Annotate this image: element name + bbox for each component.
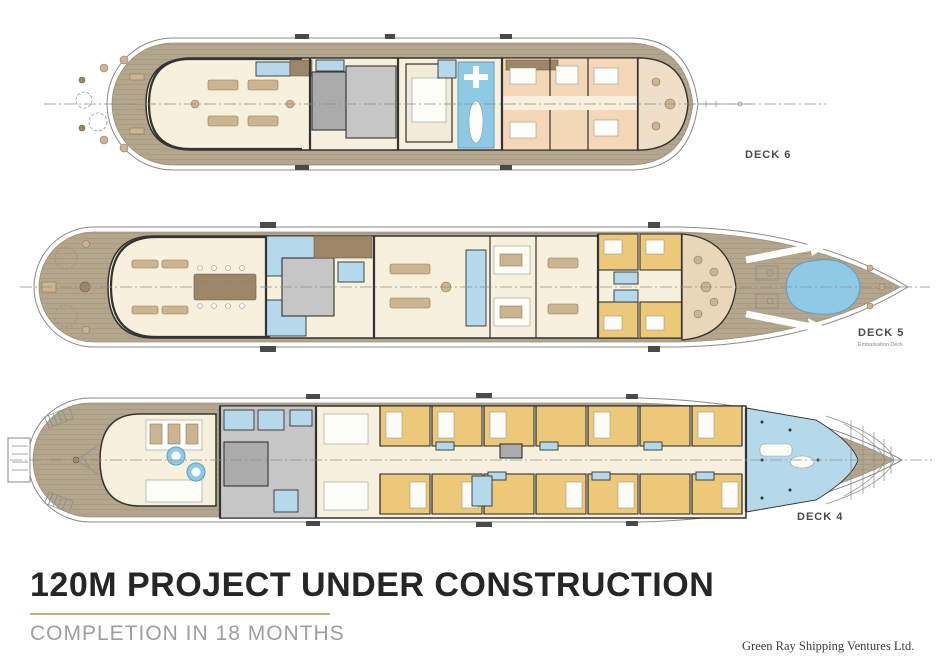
deck-6-plan: DECK 6 [40, 22, 830, 182]
deck6-label: DECK 6 [745, 149, 791, 161]
page-subtitle: COMPLETION IN 18 MONTHS [30, 622, 714, 646]
deck4-label: DECK 4 [797, 511, 843, 523]
page: DECK 6 [0, 0, 950, 672]
deck-4-plan: DECK 4 [6, 382, 936, 550]
title-block: 120M PROJECT UNDER CONSTRUCTION COMPLETI… [30, 568, 714, 646]
deck5-spa-pool [466, 250, 486, 326]
page-title: 120M PROJECT UNDER CONSTRUCTION [30, 568, 714, 604]
deck5-sublabel: Embarkation Deck [858, 342, 903, 348]
deck4-elevator [500, 444, 522, 458]
credit-line: Green Ray Shipping Ventures Ltd. [742, 639, 914, 654]
deck-5-plan: DECK 5 Embarkation Deck [14, 206, 934, 368]
deck5-label: DECK 5 [858, 327, 904, 339]
title-underline [30, 613, 330, 615]
deck5-guest-cabins [598, 234, 682, 338]
